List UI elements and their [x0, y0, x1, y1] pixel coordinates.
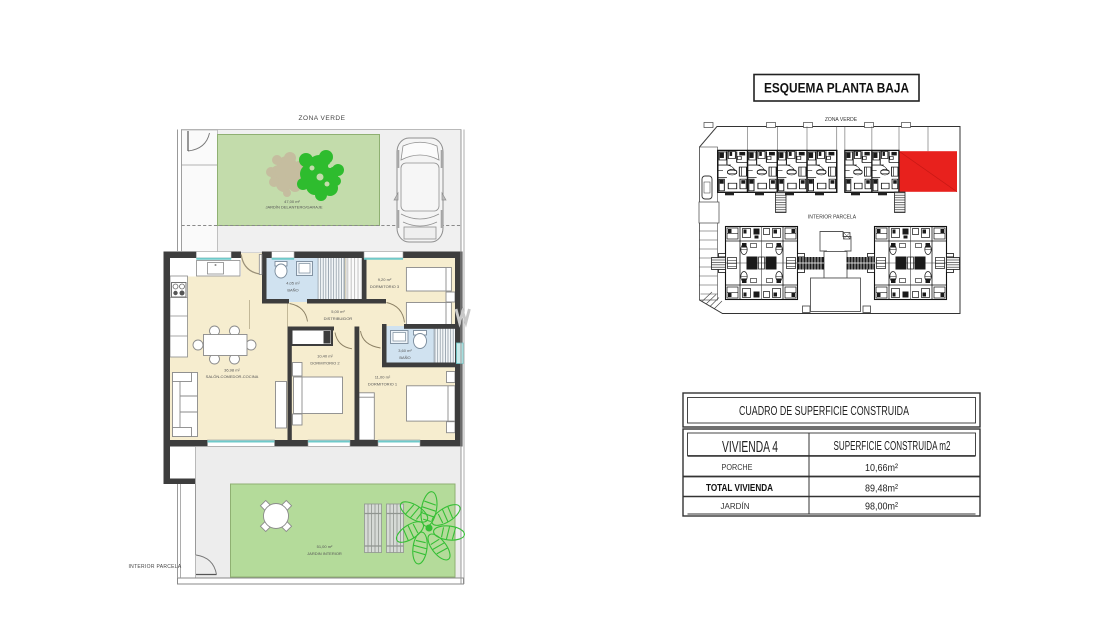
svg-text:11,00 m²: 11,00 m² [375, 375, 391, 380]
svg-text:36,98 m²: 36,98 m² [224, 368, 240, 373]
svg-text:BAÑO: BAÑO [287, 288, 298, 293]
svg-text:JARDÍN: JARDÍN [721, 501, 750, 511]
svg-text:INTERIOR PARCELA: INTERIOR PARCELA [128, 564, 181, 570]
svg-text:JARDÍN DELANTERO/GARAJE: JARDÍN DELANTERO/GARAJE [265, 205, 322, 210]
svg-text:4,05 m²: 4,05 m² [286, 281, 300, 286]
svg-text:SUPERFICIE CONSTRUIDA m2: SUPERFICIE CONSTRUIDA m2 [834, 439, 951, 453]
svg-text:DORMITORIO 3: DORMITORIO 3 [370, 284, 400, 289]
svg-text:9,20 m²: 9,20 m² [378, 277, 392, 282]
svg-text:ZONA VERDE: ZONA VERDE [825, 117, 858, 123]
svg-text:DORMITORIO 2: DORMITORIO 2 [310, 361, 340, 366]
svg-text:JARDIN INTERIOR: JARDIN INTERIOR [307, 551, 342, 556]
svg-text:DISTRIBUIDOR: DISTRIBUIDOR [324, 316, 353, 321]
svg-text:SALÓN-COMEDOR-COCINA: SALÓN-COMEDOR-COCINA [206, 374, 259, 379]
svg-text:51,00 m²: 51,00 m² [317, 544, 333, 549]
svg-text:10,40 m²: 10,40 m² [317, 354, 333, 359]
svg-text:PORCHE: PORCHE [722, 462, 753, 472]
svg-text:VIVIENDA 4: VIVIENDA 4 [722, 439, 778, 456]
svg-text:ESQUEMA PLANTA BAJA: ESQUEMA PLANTA BAJA [764, 81, 909, 96]
svg-text:BAÑO: BAÑO [399, 355, 410, 360]
svg-text:10,66m²: 10,66m² [865, 463, 899, 474]
svg-text:5,00 m²: 5,00 m² [331, 309, 345, 314]
svg-text:89,48m²: 89,48m² [865, 484, 899, 495]
svg-text:3,60 m²: 3,60 m² [398, 348, 412, 353]
svg-text:DORMITORIO 1: DORMITORIO 1 [368, 382, 398, 387]
svg-text:47,00 m²: 47,00 m² [284, 199, 300, 204]
svg-text:ZONA VERDE: ZONA VERDE [299, 115, 346, 122]
svg-text:TOTAL VIVIENDA: TOTAL VIVIENDA [706, 483, 773, 494]
svg-text:INTERIOR PARCELA: INTERIOR PARCELA [808, 215, 857, 221]
svg-text:CUADRO DE SUPERFICIE CONSTRUID: CUADRO DE SUPERFICIE CONSTRUIDA [739, 403, 909, 418]
svg-text:98,00m²: 98,00m² [865, 502, 899, 513]
